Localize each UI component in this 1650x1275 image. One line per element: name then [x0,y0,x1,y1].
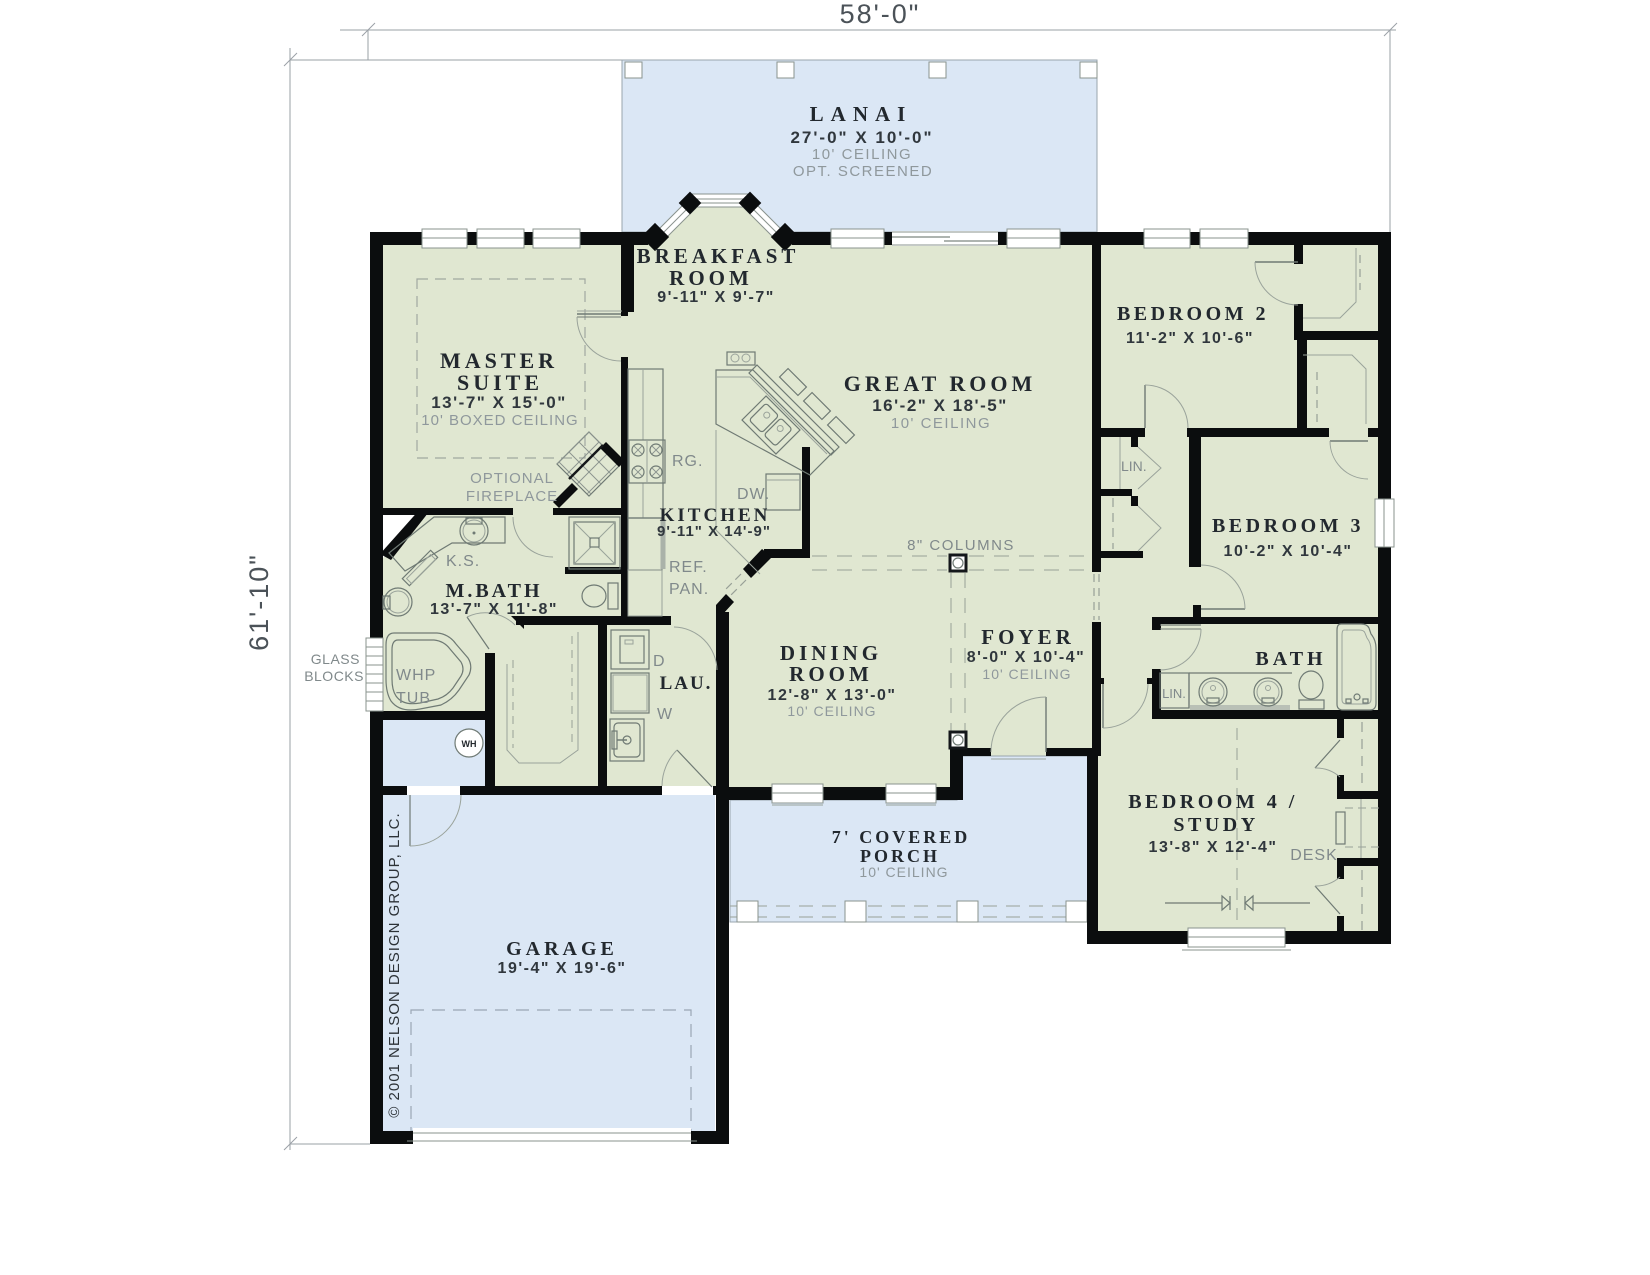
svg-text:BEDROOM 3: BEDROOM 3 [1212,515,1364,537]
svg-text:58'-0": 58'-0" [840,0,921,29]
svg-text:13'-8" X 12'-4": 13'-8" X 12'-4" [1149,839,1278,856]
svg-text:OPT. SCREENED: OPT. SCREENED [793,163,933,180]
svg-text:FOYER: FOYER [981,625,1075,649]
svg-text:10' CEILING: 10' CEILING [859,864,948,880]
svg-text:RG.: RG. [672,453,703,470]
svg-text:REF.: REF. [669,559,708,576]
svg-text:ROOM: ROOM [789,662,873,686]
svg-text:BEDROOM 4 /: BEDROOM 4 / [1128,791,1298,813]
svg-text:8" COLUMNS: 8" COLUMNS [907,537,1015,554]
svg-text:19'-4" X 19'-6": 19'-4" X 19'-6" [498,960,627,977]
svg-text:9'-11" X 14'-9": 9'-11" X 14'-9" [657,523,771,540]
svg-text:13'-7" X 15'-0": 13'-7" X 15'-0" [431,393,567,412]
svg-text:LANAI: LANAI [810,102,913,126]
svg-text:GLASS: GLASS [311,651,360,667]
svg-text:10'-2" X 10'-4": 10'-2" X 10'-4" [1224,543,1353,560]
svg-text:13'-7" X 11'-8": 13'-7" X 11'-8" [430,601,558,618]
svg-text:ROOM: ROOM [669,266,753,290]
svg-text:11'-2" X 10'-6": 11'-2" X 10'-6" [1126,330,1254,347]
svg-text:7' COVERED: 7' COVERED [832,827,971,847]
svg-text:10' CEILING: 10' CEILING [812,146,912,163]
svg-text:FIREPLACE: FIREPLACE [466,488,558,505]
svg-text:WHP: WHP [396,667,436,684]
svg-text:© 2001 NELSON DESIGN GROUP, LL: © 2001 NELSON DESIGN GROUP, LLC. [386,812,403,1117]
svg-text:10' CEILING: 10' CEILING [891,415,991,432]
svg-text:DW.: DW. [737,486,770,503]
svg-text:10' BOXED CEILING: 10' BOXED CEILING [421,412,578,429]
svg-text:BLOCKS: BLOCKS [304,668,364,684]
svg-text:SUITE: SUITE [457,370,543,395]
svg-text:10' CEILING: 10' CEILING [787,703,876,719]
svg-text:K.S.: K.S. [446,553,480,570]
svg-text:BREAKFAST: BREAKFAST [637,244,800,268]
svg-text:10' CEILING: 10' CEILING [982,666,1071,682]
svg-text:LAU.: LAU. [660,673,713,694]
svg-text:STUDY: STUDY [1173,814,1258,836]
svg-text:LIN.: LIN. [1162,686,1186,701]
svg-text:27'-0" X 10'-0": 27'-0" X 10'-0" [790,128,933,147]
svg-text:8'-0" X 10'-4": 8'-0" X 10'-4" [967,649,1086,666]
svg-text:GREAT ROOM: GREAT ROOM [844,371,1037,396]
svg-text:M.BATH: M.BATH [445,580,542,602]
svg-text:61'-10": 61'-10" [244,553,274,651]
svg-text:OPTIONAL: OPTIONAL [470,470,554,487]
svg-text:LIN.: LIN. [1121,458,1147,474]
svg-text:9'-11" X 9'-7": 9'-11" X 9'-7" [657,289,775,306]
svg-text:D: D [653,653,665,670]
svg-text:16'-2" X 18'-5": 16'-2" X 18'-5" [872,396,1008,415]
svg-text:WH: WH [462,739,477,749]
svg-text:12'-8" X 13'-0": 12'-8" X 13'-0" [768,687,897,704]
svg-text:TUB: TUB [396,690,431,707]
svg-text:DESK: DESK [1290,847,1338,864]
svg-text:GARAGE: GARAGE [506,938,618,960]
svg-text:BATH: BATH [1255,648,1326,670]
svg-text:BEDROOM 2: BEDROOM 2 [1117,303,1269,325]
svg-text:W: W [657,706,673,723]
svg-text:PAN.: PAN. [669,581,709,598]
svg-text:PORCH: PORCH [860,846,940,866]
